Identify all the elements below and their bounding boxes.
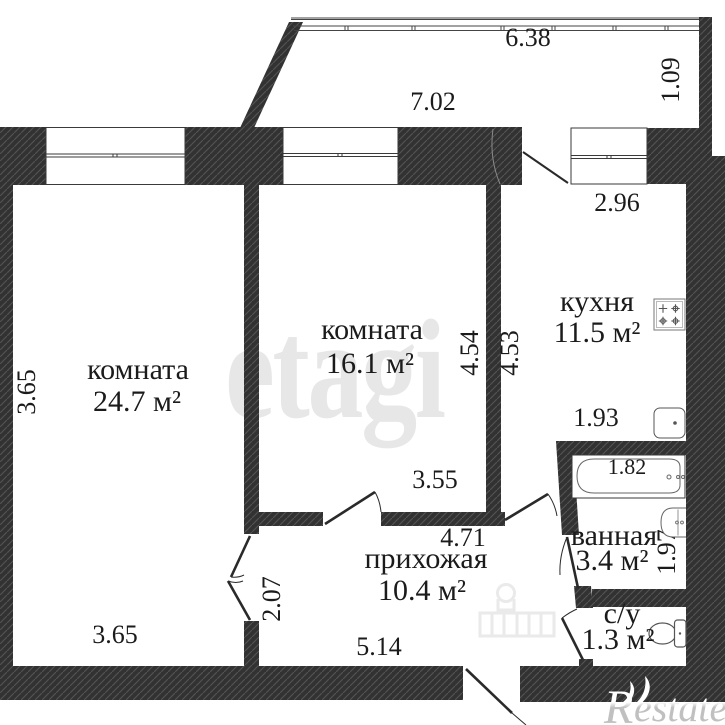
svg-text:4.54: 4.54 bbox=[455, 330, 484, 376]
svg-text:16.1 м²: 16.1 м² bbox=[326, 347, 414, 380]
svg-text:estate: estate bbox=[634, 685, 725, 725]
svg-text:1.93: 1.93 bbox=[573, 403, 619, 432]
svg-text:комната: комната bbox=[87, 353, 189, 386]
svg-text:4.53: 4.53 bbox=[495, 330, 524, 376]
svg-text:24.7 м²: 24.7 м² bbox=[93, 385, 181, 418]
svg-text:2.96: 2.96 bbox=[594, 188, 640, 217]
svg-text:3.55: 3.55 bbox=[412, 465, 458, 494]
svg-text:1.09: 1.09 bbox=[656, 57, 685, 103]
svg-text:3.4 м²: 3.4 м² bbox=[576, 544, 649, 577]
svg-text:7.02: 7.02 bbox=[410, 87, 456, 116]
svg-text:11.5 м²: 11.5 м² bbox=[554, 316, 641, 349]
svg-text:6.38: 6.38 bbox=[505, 23, 551, 52]
svg-text:10.4 м²: 10.4 м² bbox=[378, 574, 466, 607]
svg-text:1.3 м²: 1.3 м² bbox=[582, 623, 655, 656]
svg-text:3.65: 3.65 bbox=[92, 620, 138, 649]
svg-text:комната: комната bbox=[321, 313, 423, 346]
svg-text:5.14: 5.14 bbox=[356, 632, 402, 661]
svg-text:R: R bbox=[603, 681, 633, 725]
svg-text:кухня: кухня bbox=[560, 285, 634, 318]
svg-text:4.71: 4.71 bbox=[440, 523, 486, 552]
svg-text:1.82: 1.82 bbox=[608, 454, 647, 479]
svg-text:3.65: 3.65 bbox=[12, 369, 41, 415]
svg-text:2.07: 2.07 bbox=[257, 576, 286, 622]
